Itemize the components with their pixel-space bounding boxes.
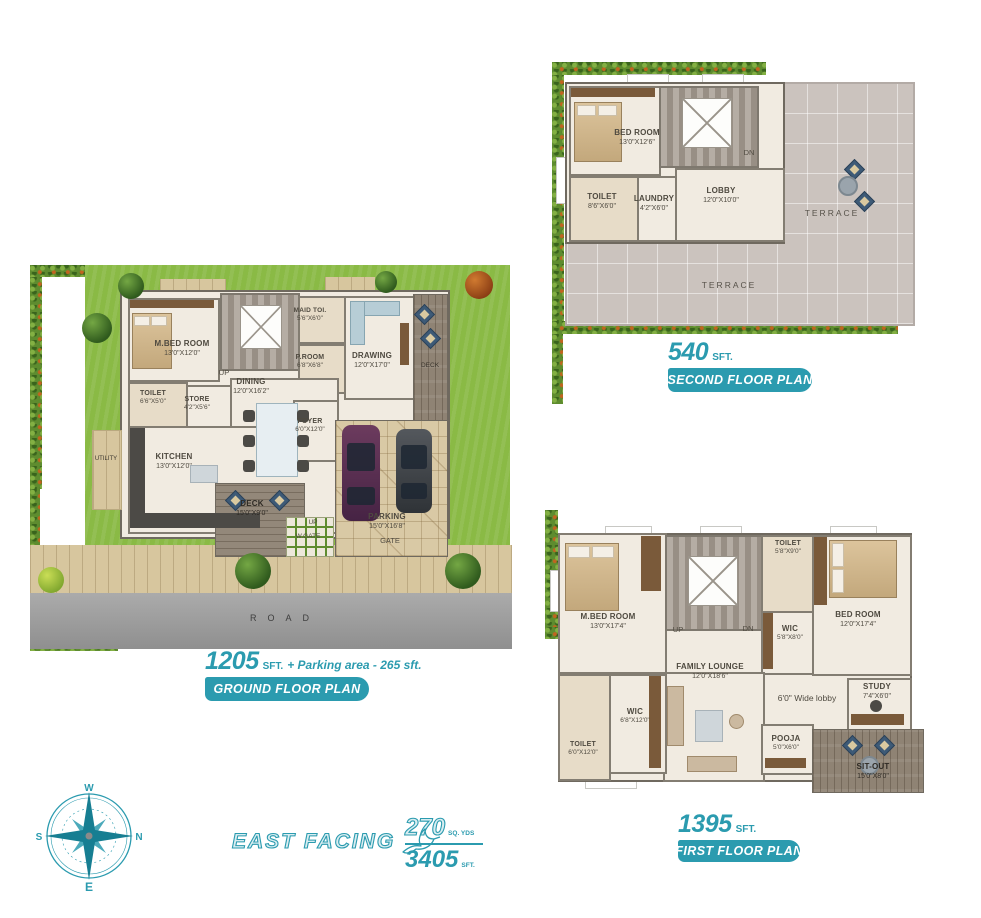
pillow — [592, 546, 614, 558]
room-label: WIC 6'8"X12'0" — [607, 707, 663, 726]
room-label: UTILITY — [90, 456, 122, 464]
room-dim: 12'0"X10'0" — [703, 196, 739, 205]
dining-chair — [297, 460, 309, 472]
room-name: TOILET — [775, 539, 801, 548]
area-value: 1395 — [678, 810, 732, 839]
room-name: BED ROOM — [614, 128, 660, 138]
facing-text: EAST FACING — [232, 830, 395, 854]
room-name: MAID TOI. — [294, 307, 327, 315]
room-label: WIC 5'8"X8'0" — [766, 624, 814, 643]
terrace-table — [838, 176, 858, 196]
pillow — [598, 105, 617, 116]
road-label: ROAD — [205, 613, 365, 625]
first-floor-plan-group: M.BED ROOM 13'0"X17'4" TOILET 5'8"X9'0" … — [545, 510, 945, 875]
room-dim: 15'0"X9'0" — [236, 509, 268, 518]
ground-floor-badge: GROUND FLOOR PLAN — [205, 677, 369, 701]
compass-n: N — [135, 832, 142, 843]
area-sft-unit: SFT. — [461, 862, 474, 869]
compass-rose: W N S E — [33, 780, 145, 892]
stair-shaft — [688, 556, 738, 606]
sofa — [667, 686, 684, 746]
wgate-label: W.GATE — [284, 533, 332, 541]
room-label: P.ROOM 6'8"X6'8" — [286, 353, 334, 371]
room-dim: 8'6"X6'0" — [588, 202, 616, 211]
room-dim: 13'0"X12'0" — [164, 349, 200, 358]
room-name: WIC — [782, 624, 798, 634]
room-dim: 6'8"X6'8" — [297, 362, 323, 370]
room-label: LAUNDRY 4'2"X6'0" — [631, 194, 677, 213]
room-label: STORE 4'2"X5'6" — [175, 395, 219, 413]
gate-text: GATE — [380, 536, 400, 546]
up-text: UP — [673, 625, 683, 635]
stairs-dn-label: DN — [736, 624, 760, 634]
sidewalk-bush — [445, 553, 481, 589]
room-label: FOYER 6'0"X12'0" — [286, 417, 334, 435]
room-dim: 13'0"X12'6" — [619, 138, 655, 147]
lobby-note-label: 6'0" Wide lobby — [759, 693, 855, 704]
room-dim: 5'8"X8'0" — [777, 634, 803, 642]
stair-shaft — [240, 305, 282, 349]
area-summary: 270 SQ. YDS 3405 SFT. — [405, 814, 485, 874]
first-floor-area: 1395 SFT. — [678, 810, 756, 839]
room-name: STORE — [185, 395, 210, 404]
room-name: SIT-OUT — [857, 762, 890, 772]
gate-label: GATE — [366, 536, 414, 546]
room-label: TOILET 8'6"X6'0" — [572, 192, 632, 211]
room-name: UTILITY — [95, 456, 117, 464]
room-dim: 5'0"X6'0" — [773, 744, 799, 752]
gate-up-label: UP — [301, 519, 325, 527]
room-name: TOILET — [570, 740, 596, 749]
room-label: PARKING 15'0"X16'8" — [355, 512, 419, 531]
wgate-text: W.GATE — [296, 533, 321, 541]
room-label: TOILET 6'0"X12'0" — [558, 740, 608, 758]
room-label: KITCHEN 13'0"X12'0" — [142, 452, 206, 471]
road-text: ROAD — [250, 613, 320, 625]
room-name: TOILET — [587, 192, 617, 202]
pillow — [568, 546, 590, 558]
car-windshield — [347, 443, 375, 471]
room-name: DECK — [240, 499, 263, 509]
second-floor-area: 540 SFT. — [668, 338, 733, 367]
area-value: 540 — [668, 338, 708, 367]
tree — [118, 273, 144, 299]
pillow — [151, 316, 167, 326]
room-label: TOILET 5'8"X9'0" — [764, 539, 812, 557]
room-dim: 6'8"X12'0" — [620, 717, 650, 725]
utility-strip — [92, 430, 122, 510]
dining-table — [256, 403, 298, 477]
tree — [375, 271, 397, 293]
room-name: POOJA — [771, 734, 800, 744]
lobby-note-text: 6'0" Wide lobby — [778, 693, 837, 704]
room-dim: 5'6"X6'0" — [297, 315, 323, 323]
hedge-left — [30, 277, 42, 489]
wardrobe — [130, 300, 214, 308]
room-name: BED ROOM — [835, 610, 881, 620]
second-floor-badge: SECOND FLOOR PLAN — [668, 368, 812, 392]
room-name: DECK — [421, 362, 439, 370]
room-label: M.BED ROOM 13'0"X12'0" — [150, 339, 214, 358]
room-dim: 13'0"X12'0" — [156, 462, 192, 471]
area-sft-value: 3405 — [405, 846, 458, 874]
room-name: PARKING — [368, 512, 406, 522]
room-label: DECK — [414, 362, 446, 370]
room-label: DECK 15'0"X9'0" — [220, 499, 284, 518]
terrace-label-right: TERRACE — [792, 208, 872, 219]
wardrobe — [814, 537, 827, 605]
room-dim: 12'0"X18'6" — [692, 672, 728, 681]
room-name: STUDY — [863, 682, 891, 692]
car-windshield — [401, 445, 427, 469]
desk-chair — [870, 700, 882, 712]
compass-e: E — [85, 880, 93, 892]
room-label: DINING 12'0"X16'2" — [219, 377, 283, 396]
room-toilet-left-first — [558, 674, 611, 781]
room-name: FOYER — [297, 417, 322, 426]
compass-icon: W N S E — [33, 780, 145, 892]
room-label: FAMILY LOUNGE 12'0"X18'6" — [670, 662, 750, 681]
pooja-shrine — [765, 758, 806, 768]
sidewalk-bush — [38, 567, 64, 593]
terrace-text: TERRACE — [805, 208, 860, 219]
up-text: UP — [219, 368, 229, 378]
area-unit: SFT. — [712, 352, 733, 363]
room-label: BED ROOM 12'0"X17'4" — [823, 610, 893, 629]
stairs-up-label: UP — [212, 368, 236, 378]
room-label: POOJA 5'0"X6'0" — [762, 734, 810, 753]
area-divider — [405, 843, 483, 845]
stairs-up-label: UP — [666, 625, 690, 635]
sofa — [350, 301, 365, 345]
room-dim: 4'2"X6'0" — [640, 204, 668, 213]
room-name: P.ROOM — [296, 353, 325, 362]
room-dim: 12'0"X16'2" — [233, 387, 269, 396]
room-dim: 6'6"X5'0" — [140, 398, 166, 406]
area-value: 1205 — [205, 647, 259, 676]
room-name: LAUNDRY — [634, 194, 674, 204]
area-sft-row: 3405 SFT. — [405, 846, 485, 874]
room-name: M.BED ROOM — [581, 612, 636, 622]
sidewalk-bush — [235, 553, 271, 589]
stair-shaft — [682, 98, 732, 148]
room-dim: 7'4"X6'0" — [863, 692, 891, 701]
first-floor-badge: FIRST FLOOR PLAN — [678, 840, 800, 862]
tree — [82, 313, 112, 343]
area-extra: + Parking area - 265 sft. — [287, 658, 421, 672]
area-yds-value: 270 — [405, 814, 445, 842]
pillow — [832, 569, 844, 593]
flowering-tree — [465, 271, 493, 299]
dining-chair — [243, 460, 255, 472]
room-label: M.BED ROOM 13'0"X17'4" — [573, 612, 643, 631]
room-dim: 15'0"X16'8" — [369, 522, 405, 531]
stairs-dn-label: DN — [737, 148, 761, 158]
area-yds-unit: SQ. YDS — [448, 830, 474, 837]
room-name: LOBBY — [707, 186, 736, 196]
terrace-text: TERRACE — [702, 280, 757, 291]
terrace-hedge-left — [552, 334, 563, 404]
room-label: LOBBY 12'0"X10'0" — [691, 186, 751, 205]
room-dim: 5'8"X9'0" — [775, 548, 801, 556]
room-label: SIT-OUT 15'0"X8'0" — [838, 762, 908, 781]
room-dim: 13'0"X17'4" — [590, 622, 626, 631]
dining-chair — [243, 410, 255, 422]
room-label: TOILET 6'6"X5'0" — [126, 389, 180, 407]
sofa — [687, 756, 737, 772]
room-name: KITCHEN — [156, 452, 193, 462]
dn-text: DN — [744, 148, 755, 158]
pouffe — [729, 714, 744, 729]
room-label: DRAWING 12'0"X17'0" — [340, 351, 404, 370]
room-name: DRAWING — [352, 351, 392, 361]
room-dim: 15'0"X8'0" — [857, 772, 889, 781]
pillow — [832, 543, 844, 567]
up-text: UP — [308, 519, 317, 527]
area-unit: SFT. — [736, 824, 757, 835]
dining-chair — [243, 435, 255, 447]
second-floor-plan-group: BED ROOM 13'0"X12'6" TOILET 8'6"X6'0" LA… — [552, 62, 932, 402]
room-dim: 6'0"X12'0" — [568, 749, 598, 757]
room-dim: 4'2"X5'6" — [184, 404, 210, 412]
room-dim: 12'0"X17'4" — [840, 620, 876, 629]
dining-chair — [297, 435, 309, 447]
area-unit: SFT. — [263, 661, 284, 672]
ground-floor-area: 1205 SFT. + Parking area - 265 sft. — [205, 647, 422, 676]
terrace-label-bottom: TERRACE — [689, 280, 769, 291]
car-gray — [396, 429, 432, 513]
car-rear-window — [347, 487, 375, 505]
area-yds-row: 270 SQ. YDS — [405, 814, 485, 842]
coffee-table — [695, 710, 723, 742]
car-purple — [342, 425, 380, 521]
room-label: BED ROOM 13'0"X12'6" — [605, 128, 669, 147]
room-name: TOILET — [140, 389, 166, 398]
compass-s: S — [36, 832, 43, 843]
room-dim: 12'0"X17'0" — [354, 361, 390, 370]
room-dim: 6'0"X12'0" — [295, 426, 325, 434]
room-name: DINING — [236, 377, 265, 387]
dn-text: DN — [743, 624, 754, 634]
room-name: M.BED ROOM — [155, 339, 210, 349]
wardrobe — [641, 536, 661, 591]
car-rear-window — [401, 483, 427, 499]
wardrobe — [571, 88, 655, 97]
ground-floor-plan-group: ROAD M.BED ROOM 13'0"X12'0" MAID TOI. 5'… — [30, 265, 512, 715]
room-label: MAID TOI. 5'6"X6'0" — [286, 307, 334, 324]
pillow — [577, 105, 596, 116]
room-name: WIC — [627, 707, 643, 717]
room-label: STUDY 7'4"X6'0" — [847, 682, 907, 701]
desk — [851, 714, 904, 725]
compass-w: W — [84, 783, 94, 794]
room-name: FAMILY LOUNGE — [676, 662, 744, 672]
pillow — [134, 316, 150, 326]
